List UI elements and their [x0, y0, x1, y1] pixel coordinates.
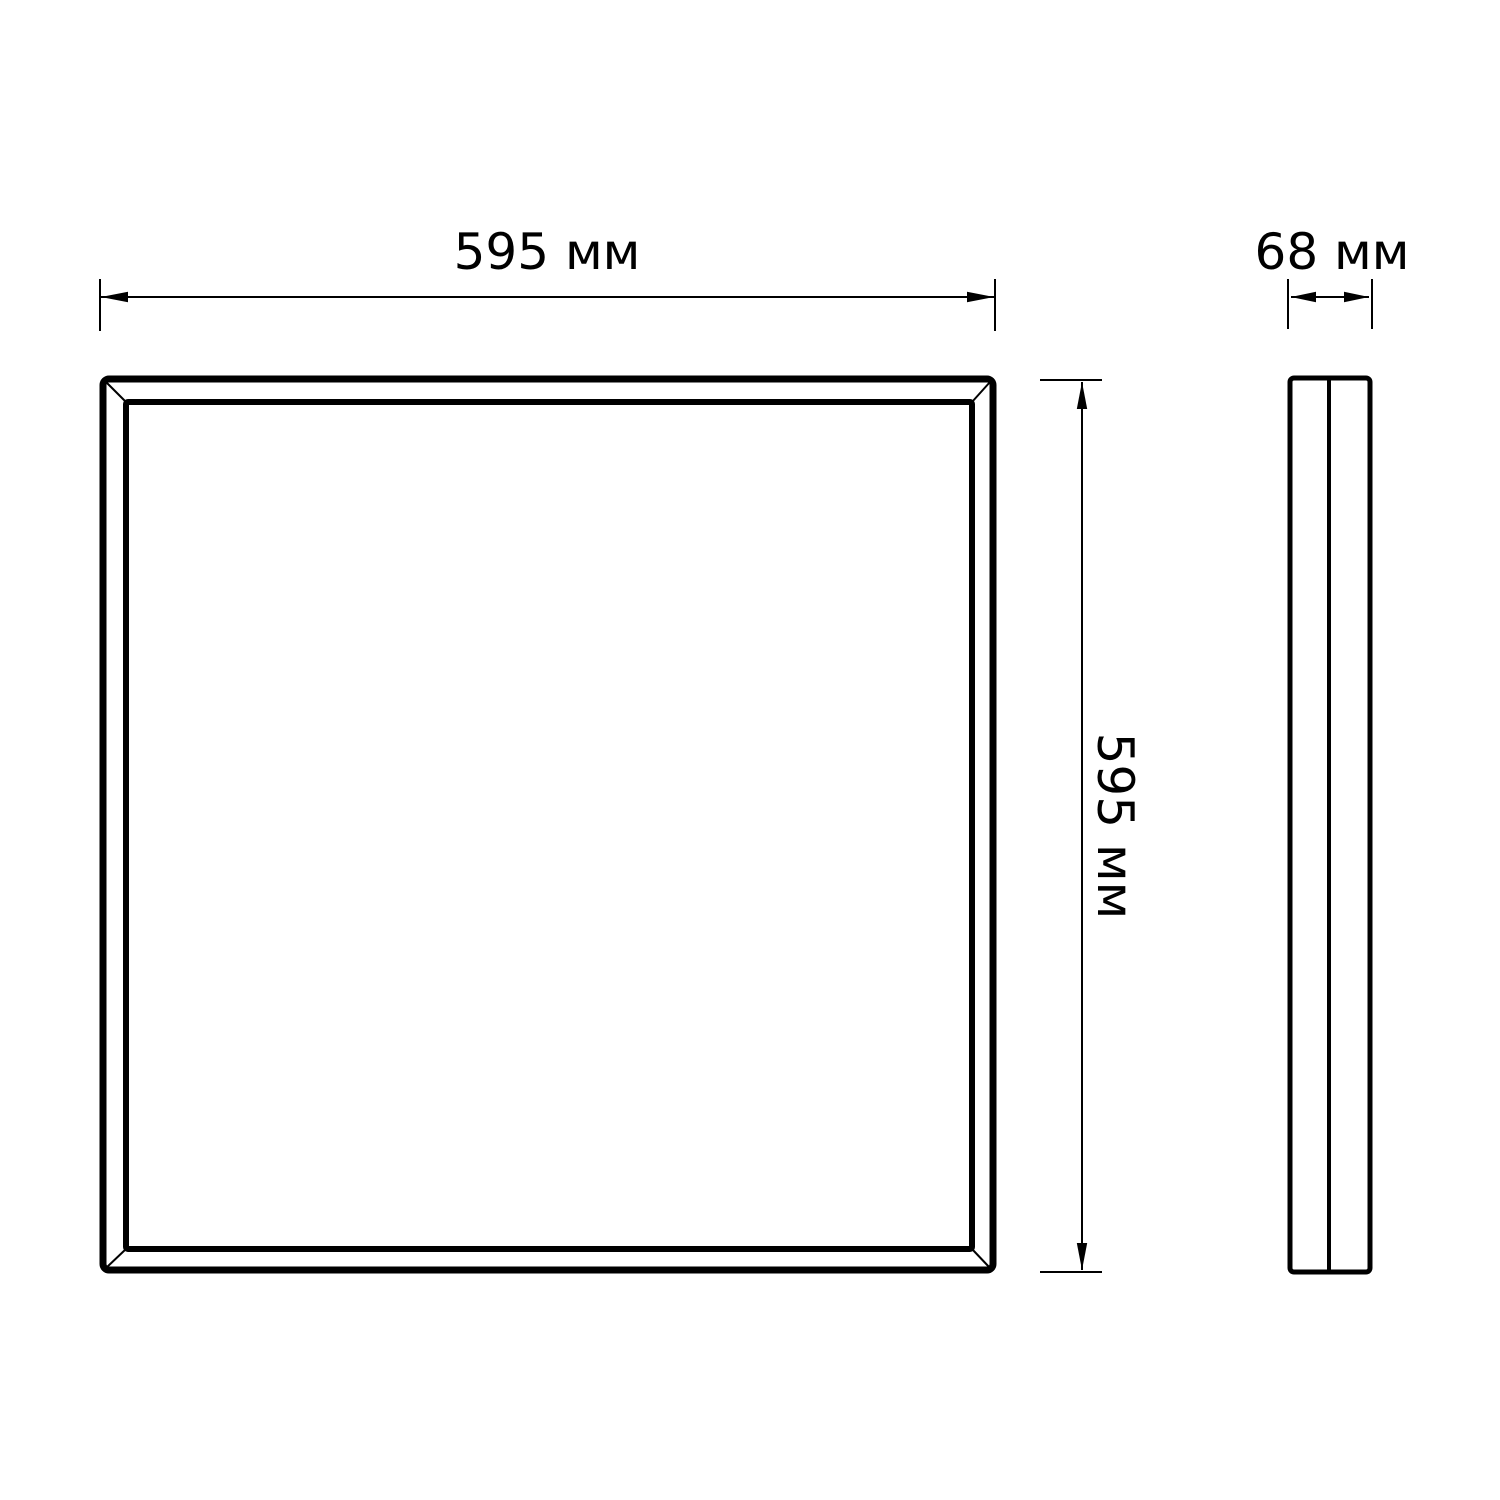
front-view-inner-frame: [126, 402, 972, 1249]
chamfer-line-top-left: [106, 382, 126, 402]
chamfer-line-top-right: [972, 382, 990, 402]
height-arrow-bottom-icon: [1077, 1243, 1087, 1270]
front-view: [103, 379, 993, 1270]
depth-arrow-left-icon: [1291, 292, 1316, 302]
width-arrow-right-icon: [967, 292, 994, 302]
dimension-drawing-svg: 595 мм 595 мм 68 мм: [0, 0, 1500, 1500]
height-dimension-label: 595 мм: [1086, 733, 1144, 920]
width-arrow-left-icon: [101, 292, 128, 302]
chamfer-line-bottom-right: [972, 1249, 990, 1268]
depth-dimension: 68 мм: [1255, 223, 1410, 329]
side-view: [1290, 378, 1370, 1272]
height-arrow-top-icon: [1077, 382, 1087, 409]
depth-arrow-right-icon: [1344, 292, 1369, 302]
chamfer-line-bottom-left: [106, 1249, 126, 1268]
depth-dimension-label: 68 мм: [1255, 223, 1410, 281]
height-dimension: 595 мм: [1040, 380, 1144, 1272]
width-dimension: 595 мм: [100, 223, 995, 331]
width-dimension-label: 595 мм: [454, 223, 641, 281]
dimension-drawing: 595 мм 595 мм 68 мм: [0, 0, 1500, 1500]
front-view-outer-frame: [103, 379, 993, 1270]
